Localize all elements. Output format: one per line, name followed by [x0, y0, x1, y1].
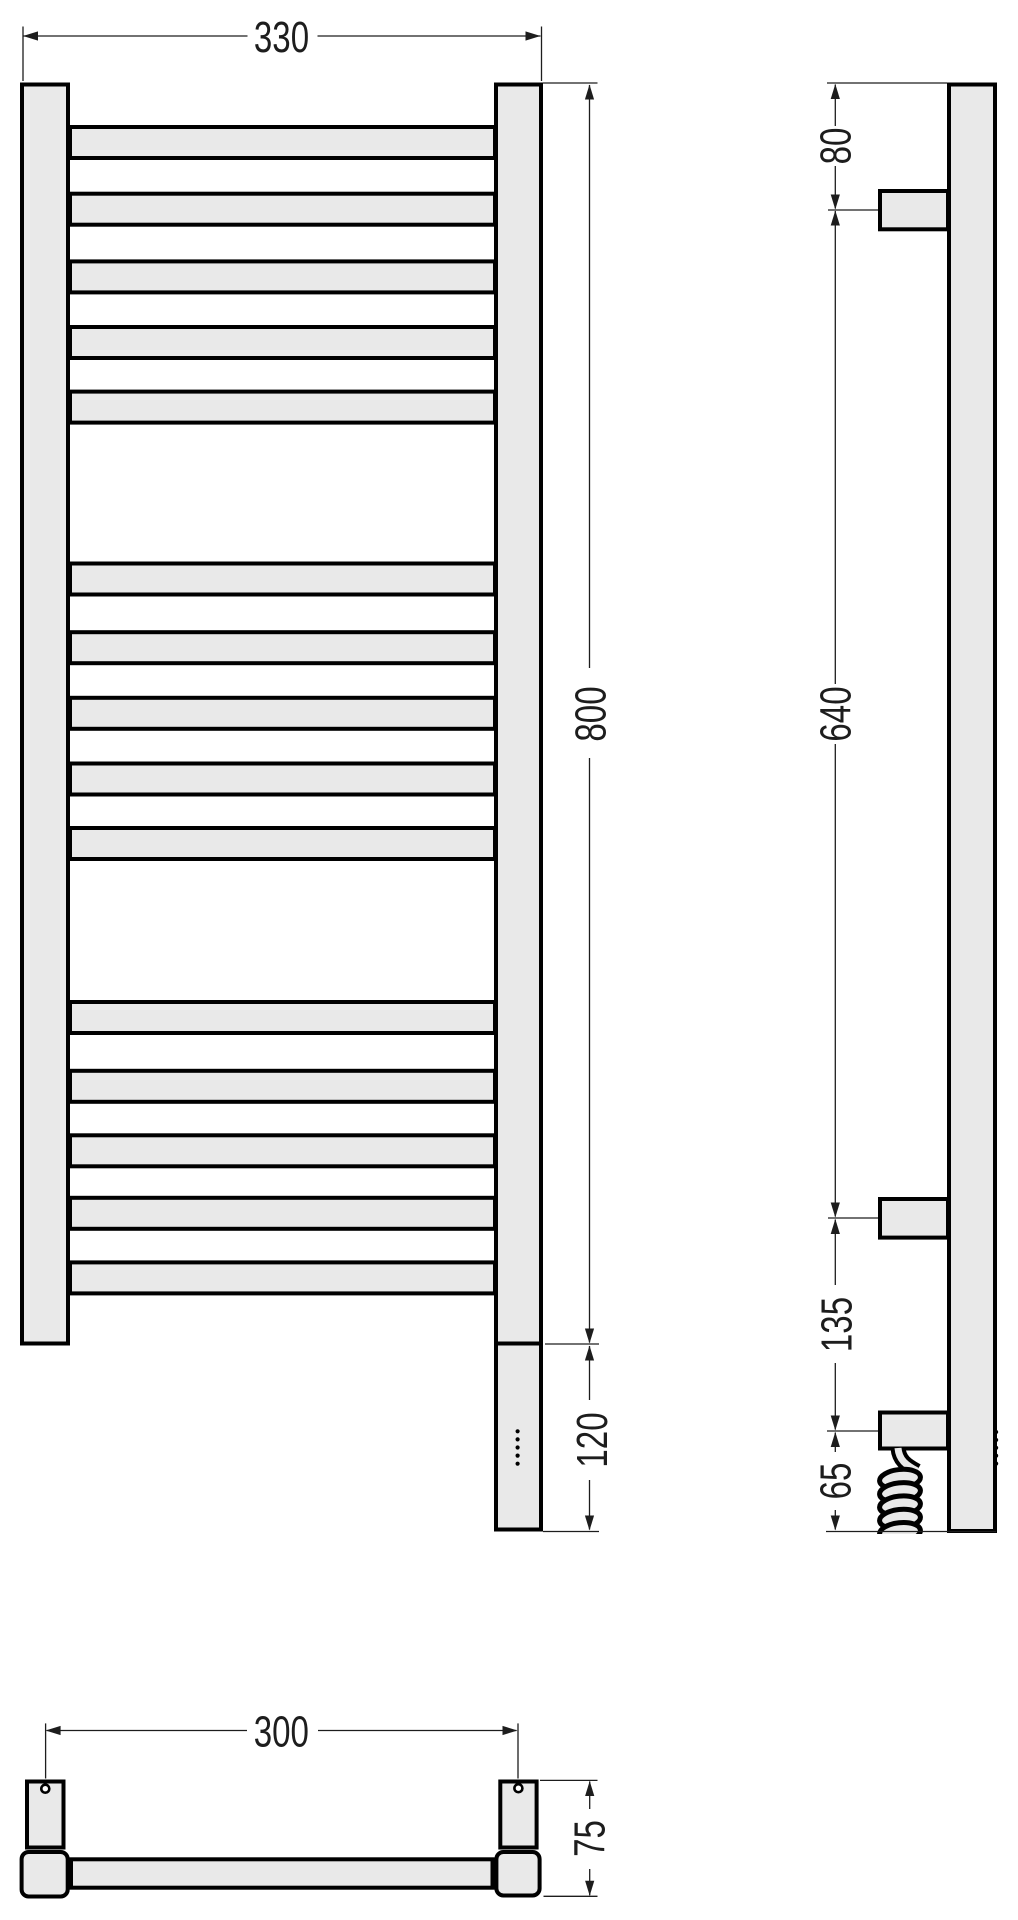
svg-text:330: 330 [254, 14, 309, 62]
svg-text:80: 80 [812, 128, 860, 165]
svg-text:300: 300 [254, 1708, 309, 1756]
svg-text:75: 75 [566, 1820, 614, 1857]
svg-text:640: 640 [812, 686, 860, 741]
svg-text:120: 120 [569, 1412, 617, 1467]
svg-text:135: 135 [813, 1297, 861, 1352]
svg-text:800: 800 [567, 686, 615, 741]
svg-text:65: 65 [812, 1463, 860, 1500]
